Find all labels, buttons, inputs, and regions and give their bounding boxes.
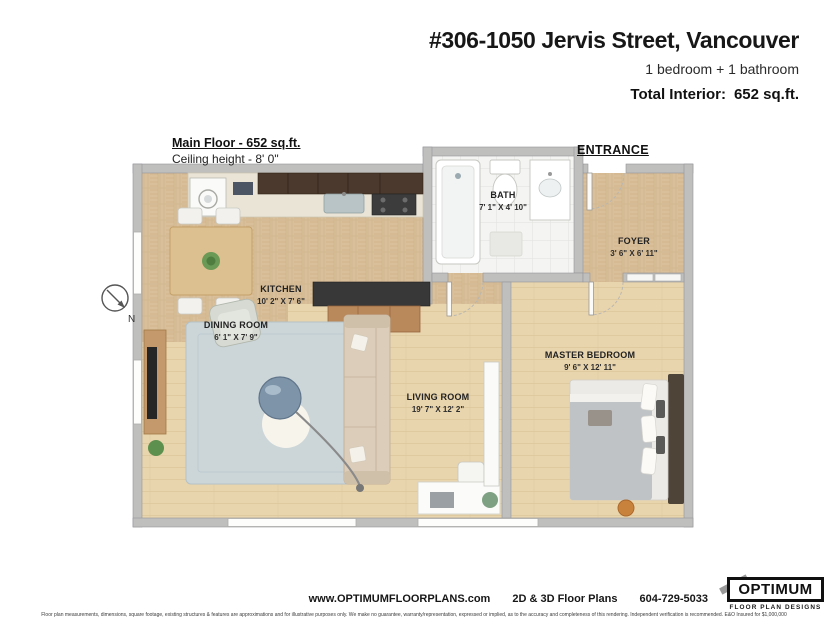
page-title: #306-1050 Jervis Street, Vancouver bbox=[429, 27, 799, 54]
total-interior: Total Interior:652 sq.ft. bbox=[429, 86, 799, 103]
ceiling-height-label: Ceiling height - 8' 0" bbox=[172, 152, 301, 166]
wall-bottom bbox=[133, 518, 693, 527]
room-label-living: LIVING ROOM bbox=[407, 392, 470, 402]
entrance-door bbox=[587, 173, 592, 210]
accent-pillow bbox=[656, 400, 665, 418]
wall-living-bedroom bbox=[502, 282, 511, 518]
vanity-sink bbox=[539, 179, 561, 197]
listing-header: #306-1050 Jervis Street, Vancouver 1 bed… bbox=[429, 27, 799, 103]
window-left-2 bbox=[134, 360, 142, 424]
dining-chair bbox=[216, 208, 240, 224]
desk-chair bbox=[458, 462, 484, 484]
compass-n-label: N bbox=[128, 314, 135, 325]
coffee-maker bbox=[233, 182, 253, 195]
main-floor-label: Main Floor - 652 sq.ft. bbox=[172, 136, 301, 150]
floor-plan: BATH 7' 1" X 4' 10" FOYER 3' 6" X 6' 11"… bbox=[118, 132, 708, 542]
toilet-tank bbox=[490, 160, 520, 174]
shower-head bbox=[455, 173, 461, 179]
logo-title: OPTIMUM bbox=[732, 580, 819, 599]
dining-chair bbox=[178, 208, 202, 224]
kitchen-cabinets bbox=[258, 173, 423, 194]
pillow bbox=[641, 415, 657, 442]
floor-summary: Main Floor - 652 sq.ft. Ceiling height -… bbox=[172, 136, 301, 166]
logo-subtitle: FLOOR PLAN DESIGNS bbox=[727, 604, 824, 611]
page: #306-1050 Jervis Street, Vancouver 1 bed… bbox=[0, 0, 828, 640]
bedroom-door bbox=[589, 282, 594, 315]
bed-headboard bbox=[668, 374, 684, 504]
bedroom-furniture bbox=[570, 374, 684, 516]
bath-door bbox=[447, 282, 452, 316]
room-dims-living: 19' 7" X 12' 2" bbox=[412, 405, 465, 414]
sofa-pillow bbox=[349, 446, 366, 463]
closet-door-1 bbox=[627, 274, 653, 281]
planter-box bbox=[484, 362, 499, 486]
tv bbox=[147, 347, 157, 419]
accent-pillow bbox=[656, 436, 665, 454]
entrance-label: ENTRANCE bbox=[577, 143, 649, 157]
cooktop bbox=[372, 194, 416, 215]
bed-tray bbox=[588, 410, 612, 426]
kitchen-island bbox=[313, 282, 430, 306]
sofa-pillow bbox=[350, 334, 368, 352]
room-dims-foyer: 3' 6" X 6' 11" bbox=[610, 249, 658, 258]
disclaimer-text: Floor plan measurements, dimensions, squ… bbox=[0, 612, 828, 618]
floor-plant bbox=[148, 440, 164, 456]
room-label-foyer: FOYER bbox=[618, 236, 650, 246]
footer-contact-row: www.OPTIMUMFLOORPLANS.com 2D & 3D Floor … bbox=[309, 593, 708, 605]
wall-bath-bottom-a bbox=[432, 273, 448, 282]
room-label-dining: DINING ROOM bbox=[204, 320, 268, 330]
total-interior-label: Total Interior: bbox=[630, 86, 726, 103]
wall-entrance-left bbox=[583, 164, 588, 173]
total-interior-value: 652 sq.ft. bbox=[734, 86, 799, 103]
pouf bbox=[482, 492, 498, 508]
bed-sheet-fold bbox=[570, 394, 652, 402]
website-link[interactable]: www.OPTIMUMFLOORPLANS.com bbox=[309, 593, 491, 605]
bath-mat bbox=[490, 232, 522, 256]
phone-number[interactable]: 604-729-5033 bbox=[639, 593, 708, 605]
wall-bath-right bbox=[574, 147, 583, 273]
bed-bath-summary: 1 bedroom + 1 bathroom bbox=[429, 61, 799, 77]
services-label: 2D & 3D Floor Plans bbox=[512, 593, 617, 605]
room-dims-bath: 7' 1" X 4' 10" bbox=[479, 203, 527, 212]
logo-box: OPTIMUM bbox=[727, 577, 824, 602]
pillow bbox=[641, 447, 658, 474]
wall-bath-top bbox=[423, 147, 583, 156]
wall-bath-left bbox=[423, 147, 432, 304]
wall-bedroom-top-a bbox=[583, 273, 590, 282]
dining-chair bbox=[178, 298, 202, 314]
room-dims-master-bedroom: 9' 6" X 12' 11" bbox=[564, 363, 616, 372]
room-dims-kitchen: 10' 2" X 7' 6" bbox=[257, 297, 305, 306]
optimum-logo: OPTIMUM FLOOR PLAN DESIGNS bbox=[727, 577, 824, 611]
room-dims-dining: 6' 1" X 7' 9" bbox=[214, 333, 258, 342]
floor-plan-svg: BATH 7' 1" X 4' 10" FOYER 3' 6" X 6' 11"… bbox=[118, 132, 708, 542]
window-bottom-2 bbox=[418, 519, 538, 527]
room-label-master-bedroom: MASTER BEDROOM bbox=[545, 350, 635, 360]
window-bottom-1 bbox=[228, 519, 356, 527]
stool bbox=[618, 500, 634, 516]
kitchen-sink bbox=[324, 194, 364, 213]
arc-lamp-shade bbox=[259, 377, 301, 419]
room-label-bath: BATH bbox=[490, 190, 515, 200]
closet-door-2 bbox=[655, 274, 681, 281]
wall-bath-bottom-b bbox=[483, 273, 583, 282]
wall-left bbox=[133, 164, 142, 527]
laptop bbox=[430, 492, 454, 508]
wall-entrance-right bbox=[626, 164, 693, 173]
compass-icon: N bbox=[98, 281, 144, 329]
wall-right bbox=[684, 164, 693, 527]
pillow bbox=[640, 383, 657, 411]
room-label-kitchen: KITCHEN bbox=[260, 284, 301, 294]
